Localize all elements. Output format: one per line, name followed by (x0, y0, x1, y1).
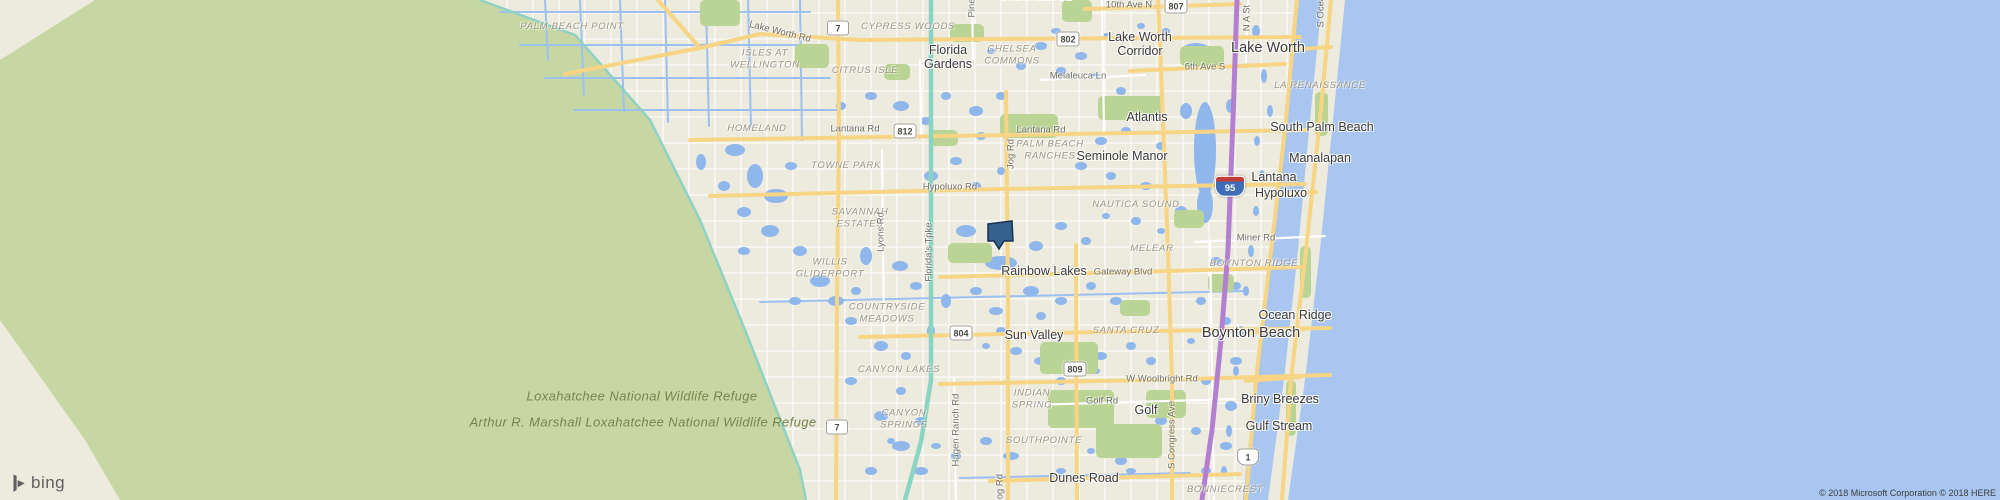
neighborhood-label-savannah-estates: SAVANNAH ESTATES (832, 207, 889, 232)
city-label-lake-worth-corridor: Lake Worth Corridor (1108, 30, 1172, 58)
city-label-florida-gardens: Florida Gardens (924, 43, 972, 71)
map-labels-layer: GreenacresFlorida GardensLake Worth Corr… (0, 0, 2000, 500)
road-label-florida-s-tpke: Florida's Tpke (924, 222, 935, 281)
road-label-hagen-ranch-rd: Hagen Ranch Rd (951, 394, 962, 467)
area-label-loxahatchee-national-wildlife-refuge: Loxahatchee National Wildlife Refuge (526, 389, 757, 404)
route-shield-us-1: 1 (1237, 449, 1259, 466)
neighborhood-label-willis-gliderport: WILLIS GLIDERPORT (796, 257, 865, 282)
road-label-w-woolbright-rd: W Woolbright Rd (1126, 374, 1198, 385)
city-label-rainbow-lakes: Rainbow Lakes (1001, 264, 1086, 278)
city-label-gulf-stream: Gulf Stream (1246, 419, 1313, 433)
neighborhood-label-canyon-lakes: CANYON LAKES (858, 364, 940, 376)
road-label-golf-rd: Golf Rd (1086, 396, 1118, 407)
city-label-lake-worth: Lake Worth (1231, 40, 1305, 56)
route-shield-state-7: 7 (827, 21, 849, 36)
road-label-s-ocean: S Ocean (1316, 0, 1327, 27)
route-shield-interstate-95: 95 (1215, 176, 1245, 197)
road-label-6th-ave-s: 6th Ave S (1185, 62, 1226, 73)
bing-logo-icon (10, 474, 27, 493)
neighborhood-label-homeland: HOMELAND (727, 123, 786, 135)
neighborhood-label-southpointe: SOUTHPOINTE (1006, 435, 1082, 447)
city-label-sun-valley: Sun Valley (1005, 328, 1064, 342)
neighborhood-label-bonniecrest: BONNIECREST (1187, 484, 1263, 496)
city-label-hypoluxo: Hypoluxo (1255, 186, 1307, 200)
neighborhood-label-nautica-sound: NAUTICA SOUND (1092, 199, 1179, 211)
city-label-south-palm-beach: South Palm Beach (1270, 120, 1374, 134)
route-shield-state-809: 809 (1063, 362, 1086, 377)
city-label-lantana: Lantana (1251, 170, 1296, 184)
neighborhood-label-towne-park: TOWNE PARK (811, 160, 881, 172)
map-copyright: © 2018 Microsoft Corporation © 2018 HERE (1819, 488, 1996, 498)
route-shield-state-812: 812 (893, 124, 916, 139)
route-shield-state-802: 802 (1056, 32, 1079, 47)
neighborhood-label-chelsea-commons: CHELSEA COMMONS (984, 44, 1040, 69)
bing-attribution: bing (10, 473, 65, 493)
road-label-lantana-rd: Lantana Rd (830, 124, 879, 135)
city-label-golf: Golf (1135, 403, 1158, 417)
road-label-hypoluxo-rd: Hypoluxo Rd (923, 182, 977, 193)
road-label-lake-worth-rd: Lake Worth Rd (748, 19, 812, 45)
neighborhood-label-indian-spring: INDIAN SPRING (1012, 388, 1053, 413)
area-label-arthur-r-marshall-loxahatchee-national-wildlife-refuge: Arthur R. Marshall Loxahatchee National … (469, 415, 816, 430)
neighborhood-label-boynton-ridge: BOYNTON RIDGE (1210, 258, 1299, 270)
city-label-dunes-road: Dunes Road (1049, 471, 1119, 485)
route-shield-state-804: 804 (949, 326, 972, 341)
route-shield-state-7: 7 (826, 420, 848, 435)
road-label-gateway-blvd: Gateway Blvd (1094, 267, 1153, 278)
bing-logo-text: bing (31, 473, 65, 493)
neighborhood-label-melear: MELEAR (1130, 243, 1173, 255)
neighborhood-label-isles-at-wellington: ISLES AT WELLINGTON (730, 48, 800, 73)
route-shield-state-807: 807 (1164, 0, 1187, 14)
neighborhood-label-palm-beach-ranches: PALM BEACH RANCHES (1016, 139, 1084, 164)
road-label-10th-ave-n: 10th Ave N (1106, 0, 1152, 11)
neighborhood-label-cypress-woods: CYPRESS WOODS (861, 21, 955, 33)
city-label-seminole-manor: Seminole Manor (1076, 149, 1167, 163)
road-label-jog-rd: Jog Rd (995, 474, 1006, 500)
road-label-miner-rd: Miner Rd (1237, 233, 1276, 244)
road-label-melaleuca-ln: Melaleuca Ln (1050, 71, 1107, 82)
neighborhood-label-santa-cruz: SANTA CRUZ (1093, 325, 1160, 337)
road-label-jog-rd: Jog Rd (1006, 139, 1017, 169)
neighborhood-label-canyon-springs: CANYON SPRINGS (880, 408, 928, 433)
road-label-lantana-rd: Lantana Rd (1016, 125, 1065, 136)
road-label-s-congress-ave: S Congress Ave (1167, 401, 1178, 469)
city-label-greenacres: Greenacres (997, 0, 1073, 4)
neighborhood-label-palm-beach-point: PALM BEACH POINT (520, 21, 623, 33)
road-label-pine: Pine (967, 0, 978, 18)
road-label-n-a-st: N A St (1242, 5, 1253, 31)
map-canvas[interactable]: GreenacresFlorida GardensLake Worth Corr… (0, 0, 2000, 500)
city-label-boynton-beach: Boynton Beach (1202, 325, 1300, 341)
neighborhood-label-countryside-meadows: COUNTRYSIDE MEADOWS (849, 302, 926, 327)
road-label-lyons-rd: Lyons Rd (876, 212, 887, 252)
city-label-manalapan: Manalapan (1289, 151, 1351, 165)
neighborhood-label-citrus-isle: CITRUS ISLE (832, 65, 898, 77)
city-label-briny-breezes: Briny Breezes (1241, 392, 1319, 406)
city-label-ocean-ridge: Ocean Ridge (1259, 308, 1332, 322)
city-label-atlantis: Atlantis (1127, 110, 1168, 124)
neighborhood-label-la-renaissance: LA RENAISSANCE (1274, 80, 1366, 92)
